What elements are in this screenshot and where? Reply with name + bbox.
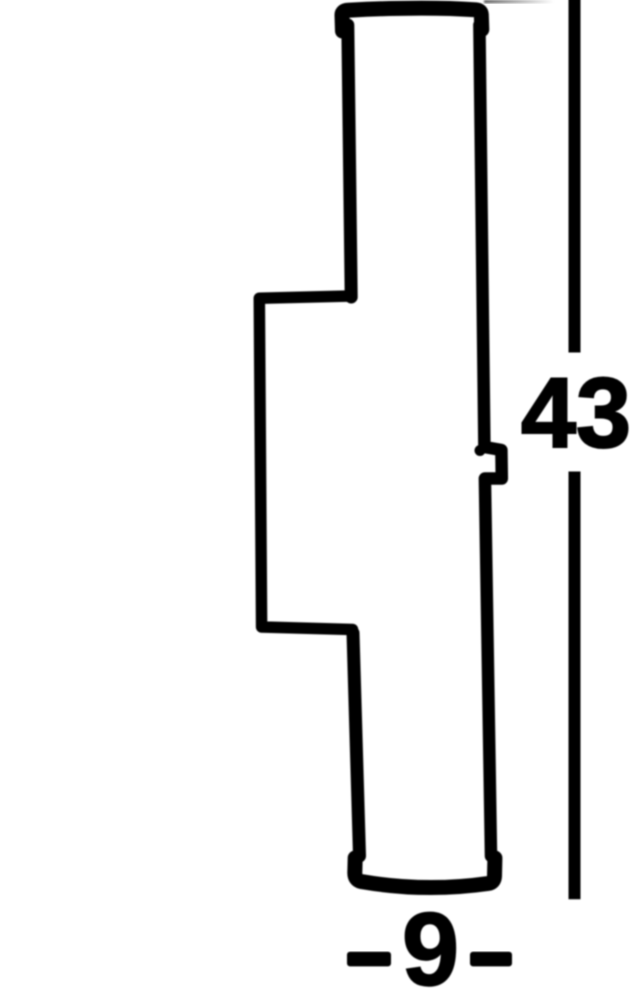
svg-text:9: 9 (402, 891, 460, 1000)
svg-text:43: 43 (521, 357, 631, 468)
